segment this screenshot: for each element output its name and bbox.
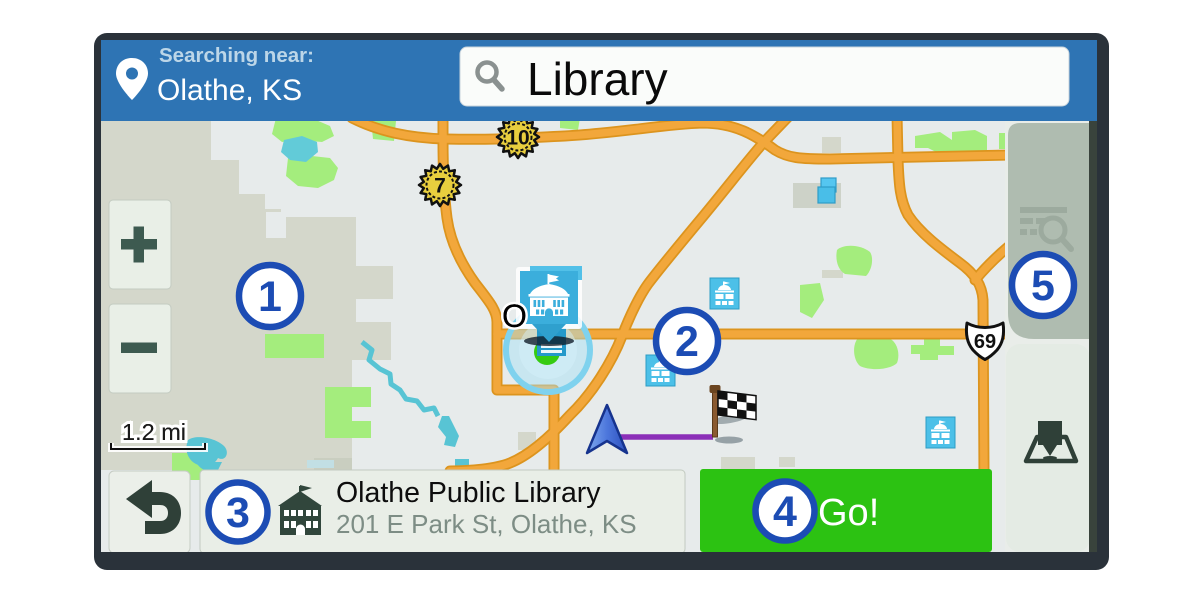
svg-text:69: 69 (974, 331, 996, 353)
svg-text:Olathe Public Library: Olathe Public Library (336, 477, 601, 509)
svg-text:3: 3 (226, 489, 250, 537)
svg-text:1: 1 (258, 273, 282, 321)
svg-text:4: 4 (773, 488, 797, 536)
svg-text:5: 5 (1031, 262, 1055, 310)
svg-text:7: 7 (434, 175, 446, 198)
svg-text:1.2 mi: 1.2 mi (122, 419, 186, 445)
svg-text:10: 10 (506, 127, 529, 150)
svg-text:2: 2 (675, 318, 699, 366)
svg-text:Library: Library (527, 53, 668, 105)
svg-text:O: O (502, 298, 527, 334)
svg-text:Go!: Go! (818, 492, 879, 534)
svg-text:Searching near:: Searching near: (159, 44, 314, 67)
svg-text:Olathe, KS: Olathe, KS (157, 74, 302, 107)
svg-text:201 E Park St, Olathe, KS: 201 E Park St, Olathe, KS (336, 509, 637, 539)
